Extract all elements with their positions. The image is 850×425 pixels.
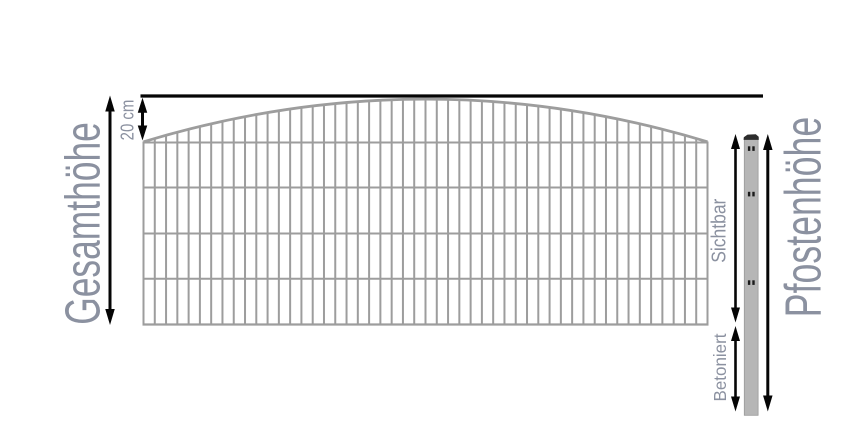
svg-text:Gesamthöhe: Gesamthöhe	[56, 122, 111, 325]
svg-text:Betoniert: Betoniert	[710, 333, 731, 401]
svg-text:Sichtbar: Sichtbar	[707, 199, 729, 263]
svg-text:Pfostenhöhe: Pfostenhöhe	[775, 117, 832, 317]
svg-text:20 cm: 20 cm	[117, 100, 138, 141]
